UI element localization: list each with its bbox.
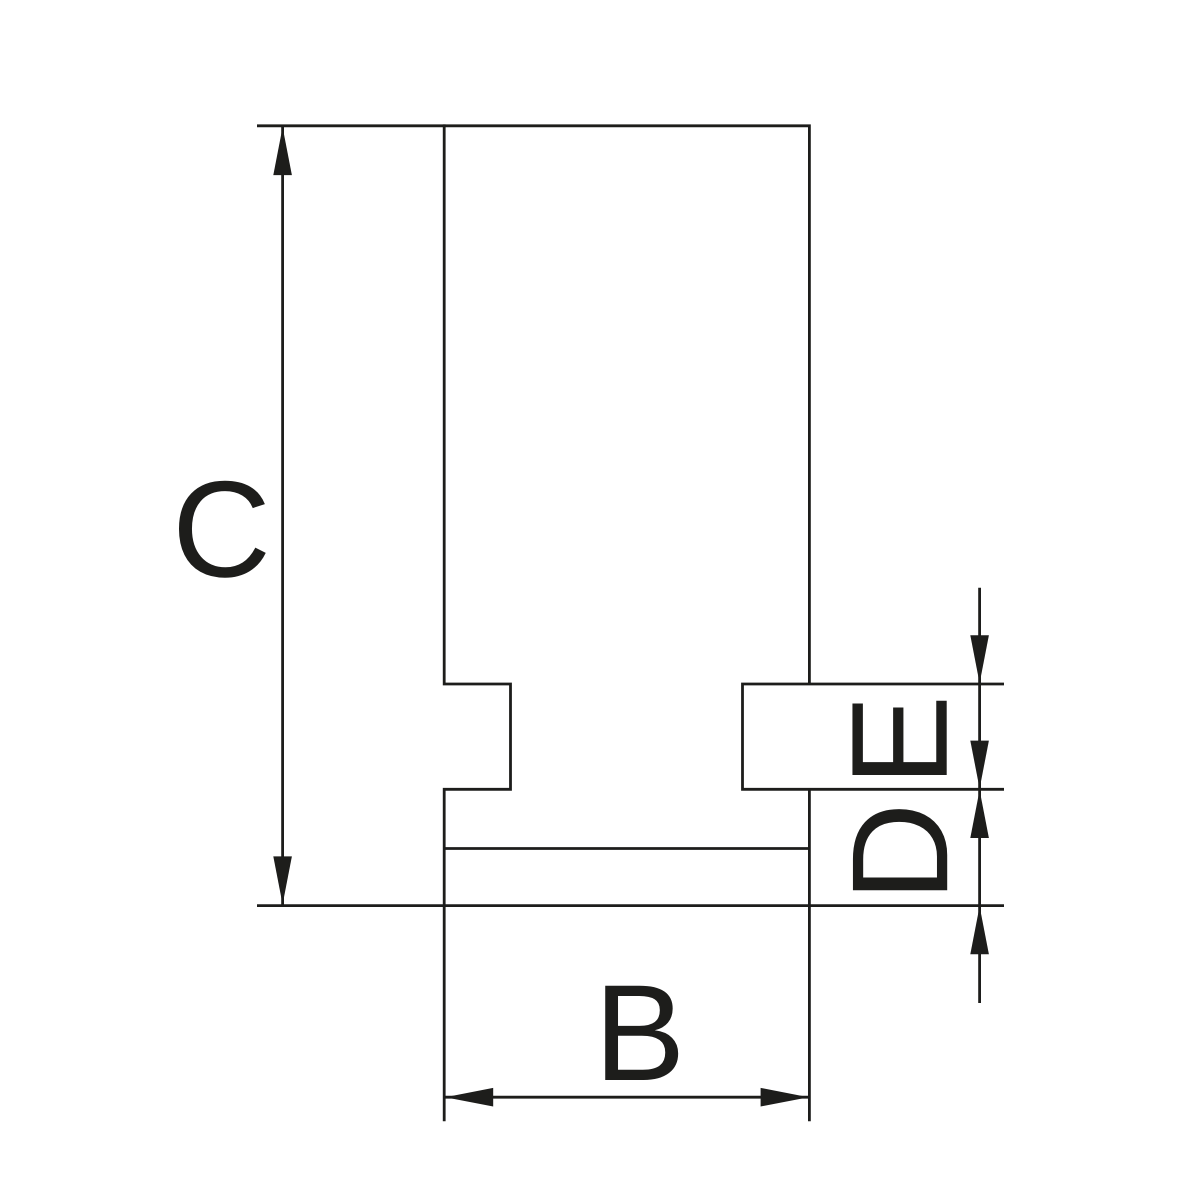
svg-text:B: B [594, 957, 685, 1110]
svg-text:C: C [172, 453, 271, 606]
svg-text:E: E [824, 695, 977, 786]
svg-text:D: D [824, 803, 977, 902]
